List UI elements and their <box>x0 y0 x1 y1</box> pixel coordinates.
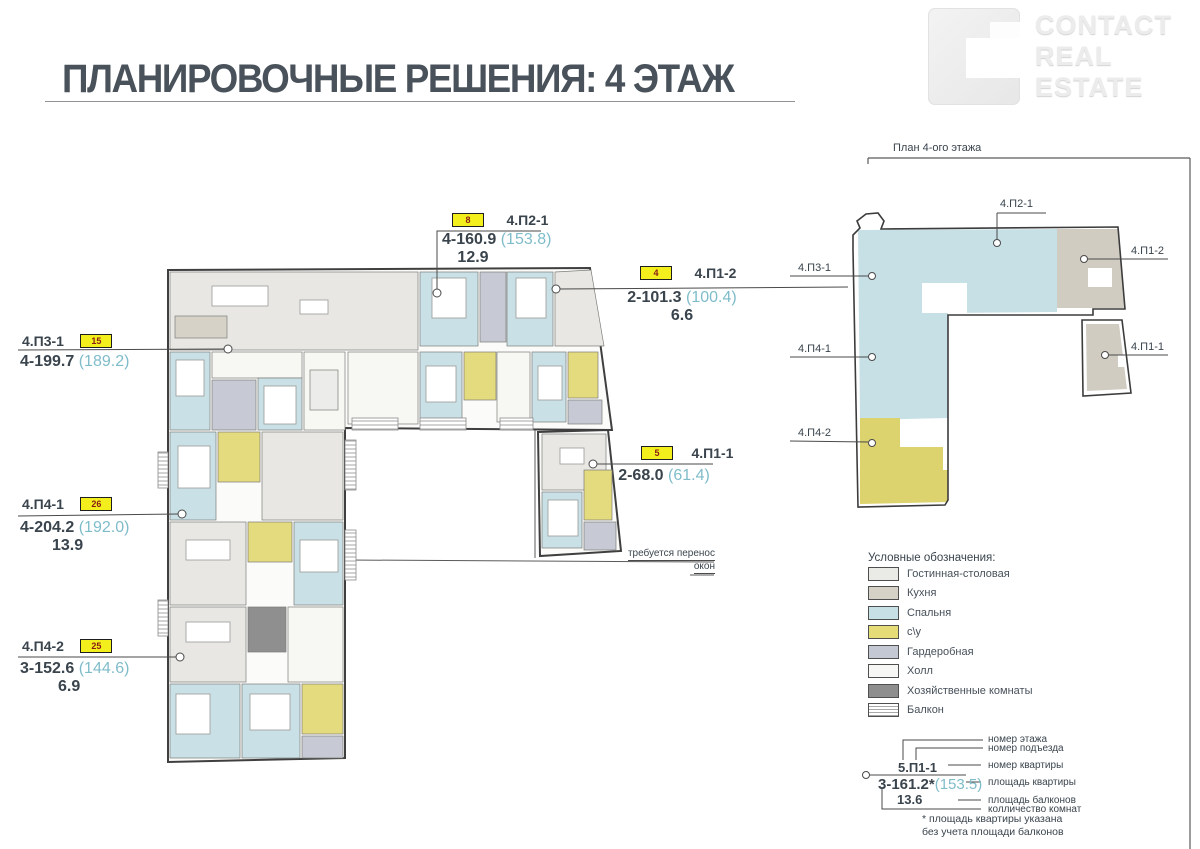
apartment-area: 4-160.9 (153.8) <box>442 231 550 249</box>
utility-swatch <box>868 684 899 698</box>
apartment-id: 4.П1-1 <box>691 445 733 461</box>
apartment-id: 4.П3-1 <box>22 333 64 349</box>
flat-number-badge: 26 <box>80 497 112 511</box>
legend-item-bedroom: Спальня <box>868 605 1032 620</box>
key-plan-label-4p3-1: 4.П3-1 <box>798 262 831 274</box>
balcony-area: 12.9 <box>442 249 504 267</box>
contact-logo-icon <box>928 8 1020 105</box>
legend-title: Условные обозначения: <box>868 552 995 564</box>
balcony-area: 6.6 <box>620 307 744 325</box>
bedroom-swatch <box>868 606 899 620</box>
flat-number-badge: 4 <box>640 266 672 280</box>
annotation-marker <box>863 772 870 779</box>
apartment-id: 4.П2-1 <box>506 212 548 228</box>
apartment-id: 4.П4-2 <box>22 638 64 654</box>
flat-number-badge: 5 <box>641 446 673 460</box>
annotation-sample-area: 3-161.2*(153.5) <box>878 776 982 793</box>
callout-4p4-2: 4.П4-2 25 <box>22 638 112 656</box>
annotation-footnote: * площадь квартиры указана без учета пло… <box>922 813 1064 839</box>
key-plan-label-4p1-2: 4.П1-2 <box>1131 245 1164 257</box>
main-plan-callout-markers <box>176 285 597 661</box>
balcony-area: 13.9 <box>52 537 83 555</box>
balcony-swatch <box>868 703 899 717</box>
key-plan-label-4p4-1: 4.П4-1 <box>798 343 831 355</box>
bathroom-swatch <box>868 625 899 639</box>
key-plan-label-4p1-1: 4.П1-1 <box>1131 341 1164 353</box>
annotation-sample-id: 5.П1-1 <box>898 760 937 775</box>
callout-4p1-2: 4 4.П1-2 <box>640 265 736 283</box>
wardrobe-swatch <box>868 645 899 659</box>
legend-item-living: Гостинная-столовая <box>868 566 1032 581</box>
window-relocation-note: требуется перенос окон <box>595 548 715 574</box>
apartment-area: 2-68.0 (61.4) <box>613 467 715 485</box>
apartment-area: 3-152.6 (144.6) <box>20 660 129 678</box>
callout-4p1-1: 5 4.П1-1 <box>641 445 733 463</box>
apartment-area: 4-204.2 (192.0) <box>20 519 129 537</box>
logo-line-2: REAL <box>1035 41 1172 72</box>
callout-4p3-1: 4.П3-1 15 <box>22 333 112 351</box>
legend-item-hall: Холл <box>868 664 1032 679</box>
key-plan-label-4p2-1: 4.П2-1 <box>1000 198 1033 210</box>
balcony-area: 6.9 <box>58 678 80 696</box>
legend: Гостинная-столовая Кухня Спальня с\у Гар… <box>868 566 1032 718</box>
living-swatch <box>868 567 899 581</box>
key-plan-label-4p4-2: 4.П4-2 <box>798 427 831 439</box>
legend-item-bathroom: с\у <box>868 625 1032 640</box>
contact-logo-text: CONTACT REAL ESTATE <box>1035 10 1172 103</box>
annotation-label-flat-number: номер квартиры <box>988 760 1063 771</box>
annotation-sample-balcony: 13.6 <box>897 792 922 807</box>
title-rule <box>45 101 795 102</box>
legend-item-utility: Хозяйственные комнаты <box>868 683 1032 698</box>
annotation-label-flat-area: площадь квартиры <box>988 777 1076 788</box>
apartment-id: 4.П4-1 <box>22 496 64 512</box>
legend-item-kitchen: Кухня <box>868 586 1032 601</box>
annotation-label-entrance: номер подъезда <box>988 743 1064 754</box>
flat-number-badge: 8 <box>452 213 484 227</box>
key-plan-title: План 4-ого этажа <box>893 142 981 154</box>
floor-plan-page: { "header": { "title": "ПЛАНИРОВОЧНЫЕ РЕ… <box>0 0 1200 849</box>
apartment-area: 2-101.3 (100.4) <box>620 289 744 307</box>
hall-swatch <box>868 664 899 678</box>
flat-number-badge: 25 <box>80 639 112 653</box>
logo-line-1: CONTACT <box>1035 10 1172 41</box>
flat-number-badge: 15 <box>80 334 112 348</box>
legend-item-wardrobe: Гардеробная <box>868 644 1032 659</box>
apartment-area: 4-199.7 (189.2) <box>20 353 129 371</box>
apartment-id: 4.П1-2 <box>694 265 736 281</box>
page-title: ПЛАНИРОВОЧНЫЕ РЕШЕНИЯ: 4 ЭТАЖ <box>62 57 733 102</box>
callout-4p4-1: 4.П4-1 26 <box>22 496 112 514</box>
legend-item-balcony: Балкон <box>868 703 1032 718</box>
key-plan-void <box>922 283 967 313</box>
logo-line-3: ESTATE <box>1035 72 1172 103</box>
drawing-layer <box>0 0 1200 849</box>
key-plan <box>790 213 1168 507</box>
kitchen-swatch <box>868 586 899 600</box>
callout-4p2-1: 8 4.П2-1 <box>452 212 548 230</box>
main-floor-plan <box>158 268 714 762</box>
